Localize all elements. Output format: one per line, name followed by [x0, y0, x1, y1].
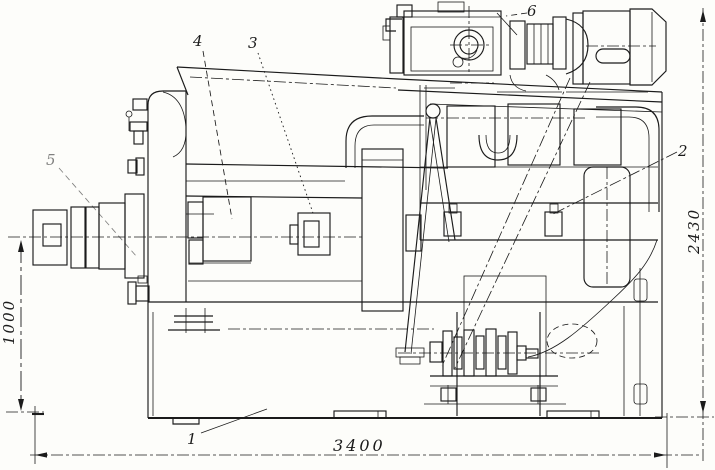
- machine-drawing-svg: 1 2 3 4 5 6 1000 3400 2430: [0, 0, 715, 470]
- dim-label-1000: 1000: [0, 299, 18, 345]
- linkage-pin: [426, 104, 440, 118]
- side-box: [634, 384, 647, 404]
- side-box: [634, 279, 647, 301]
- headstock-blocks: [188, 149, 421, 311]
- u-pipe-inner: [486, 135, 510, 153]
- drawing-sheet: 1 2 3 4 5 6 1000 3400 2430: [0, 0, 715, 470]
- lever-pin: [126, 111, 132, 117]
- centerlines: [8, 6, 656, 353]
- leader-2: [551, 152, 677, 215]
- u-pipe-outer: [479, 135, 517, 160]
- left-pipe-inner: [355, 125, 424, 168]
- clamp-plate: [510, 21, 525, 69]
- top-band-line: [398, 79, 662, 92]
- callout-5: 5: [46, 151, 56, 169]
- central-slide: [362, 149, 403, 311]
- shaft-end-inner: [43, 224, 61, 246]
- support-post: [390, 17, 403, 73]
- dim-label-3400: 3400: [333, 436, 386, 455]
- dim-label-2430: 2430: [685, 208, 703, 255]
- left-feed-shaft: [33, 194, 144, 278]
- cover-top-edge: [177, 67, 398, 79]
- cover-centerline: [190, 77, 396, 88]
- callout-1: 1: [187, 430, 197, 448]
- electric-motor: [566, 9, 666, 92]
- t-stud-callout2-target: [545, 212, 562, 236]
- top-punch-assembly: [383, 2, 588, 92]
- right-body: [346, 79, 662, 364]
- left-housing: [126, 67, 448, 304]
- callout-6: 6: [527, 2, 537, 20]
- access-window: [508, 104, 560, 165]
- dimension-2430: 2430: [655, 8, 714, 462]
- motor-keyway-slot: [596, 49, 630, 63]
- right-pipe-outer: [596, 107, 659, 212]
- housing-tab: [133, 99, 147, 110]
- callout3-target-block: [298, 213, 330, 255]
- curved-bracket: [566, 19, 588, 74]
- bracket-hook: [386, 19, 402, 31]
- arrow-right: [654, 452, 666, 457]
- arrow-left: [35, 452, 47, 457]
- side-fitting: [128, 282, 136, 304]
- cover-curl: [163, 92, 186, 157]
- leader-3: [258, 53, 314, 216]
- spindle-rail-top: [186, 164, 448, 168]
- leader-6: [506, 13, 527, 16]
- linkage-rod: [405, 117, 430, 352]
- arrow-up: [18, 240, 24, 252]
- arrow-down: [700, 401, 706, 413]
- callouts: 1 2 3 4 5 6: [46, 2, 688, 448]
- callout-4: 4: [192, 32, 203, 50]
- arrow-up: [700, 10, 706, 22]
- housing-tab: [130, 122, 147, 131]
- plate-stack: [527, 24, 553, 64]
- machine-base: [148, 92, 662, 424]
- punch-unit-box: [404, 11, 501, 75]
- leader-1: [201, 409, 267, 433]
- callout4-target-block: [203, 197, 251, 261]
- leader-slant-b: [455, 82, 590, 368]
- motor-end-cap: [630, 9, 666, 85]
- cable-curve: [528, 240, 657, 357]
- dimension-1000: 1000: [0, 240, 44, 414]
- leader-4: [203, 51, 232, 219]
- callout-3: 3: [248, 34, 258, 52]
- arrow-down: [18, 399, 24, 411]
- motor-body: [583, 11, 630, 84]
- shaft-end-block: [33, 210, 67, 265]
- callout-2: 2: [677, 142, 688, 160]
